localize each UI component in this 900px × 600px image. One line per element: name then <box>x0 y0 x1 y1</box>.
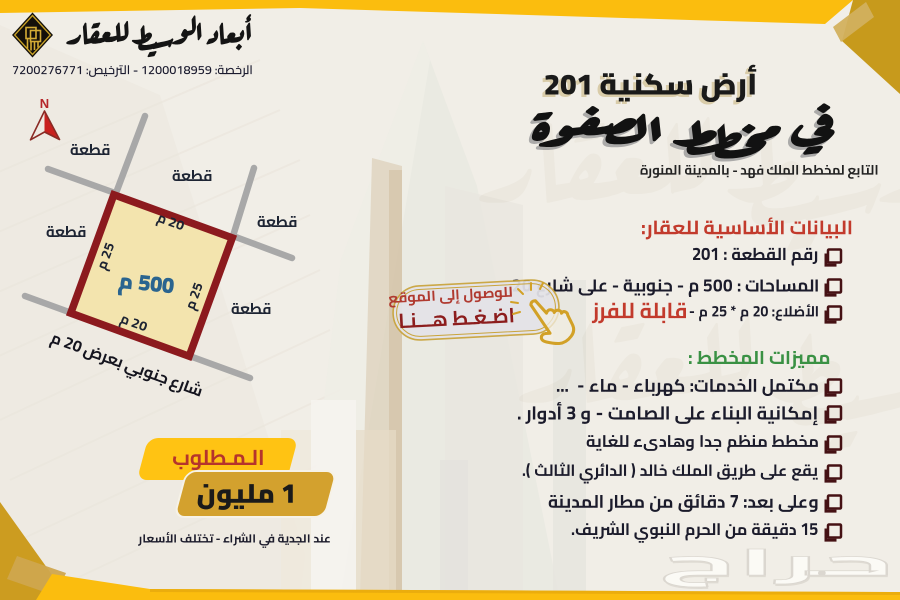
svg-text:N: N <box>40 96 49 111</box>
